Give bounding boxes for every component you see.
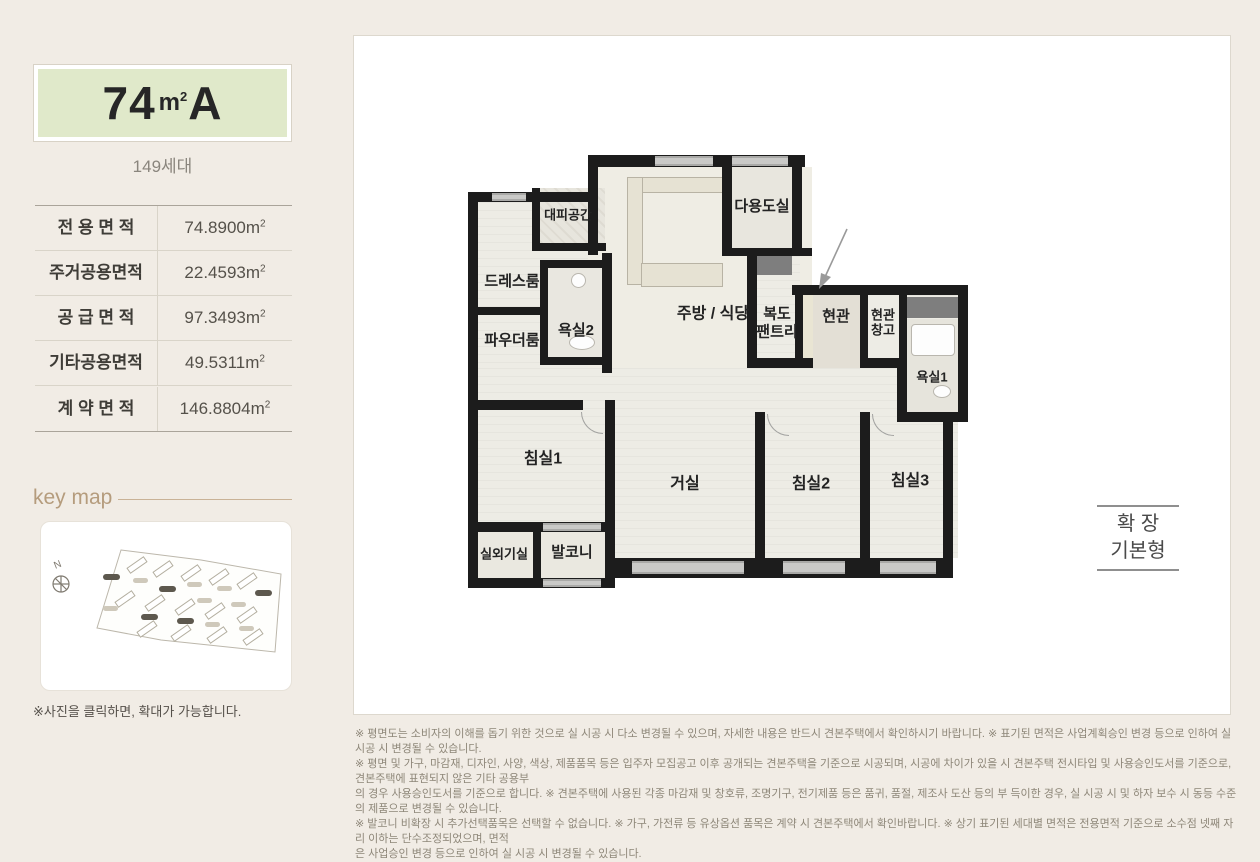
unit-type-title: 74m2A — [38, 69, 287, 137]
room-label-pantry: 복도팬트리 — [756, 305, 797, 340]
window — [655, 156, 713, 166]
table-row: 주거공용면적 22.4593m2 — [35, 251, 292, 296]
wall — [602, 253, 612, 373]
room-label-entry-closet: 현관창고 — [871, 308, 895, 339]
wall — [897, 412, 968, 422]
area-table: 전 용 면 적 74.8900m2 주거공용면적 22.4593m2 공 급 면… — [35, 205, 292, 432]
wall — [899, 295, 907, 365]
wall — [747, 358, 813, 368]
unit-type-letter: A — [188, 76, 222, 130]
wall — [860, 295, 868, 368]
bathtub — [911, 324, 955, 356]
wall — [540, 260, 610, 268]
badge-line1: 확 장 — [1097, 511, 1179, 538]
window — [632, 561, 744, 574]
disclaimer-line: ※ 평면 및 가구, 마감재, 디자인, 사양, 색상, 제품품목 등은 입주자… — [355, 757, 1241, 787]
wall — [468, 400, 583, 410]
room-label-ac-room: 실외기실 — [480, 546, 528, 561]
entrance-arrow-icon — [813, 225, 857, 293]
disclaimer-line: 은 사업승인 변경 등으로 인하여 실 시공 시 변경될 수 있습니다. — [355, 847, 1241, 862]
wall — [532, 188, 540, 250]
table-row: 기타공용면적 49.5311m2 — [35, 341, 292, 386]
room-label-vestibule: 현관 — [822, 308, 850, 326]
unit-type-title-box: 74m2A — [33, 64, 292, 142]
room-label-dressroom: 드레스룸 — [484, 273, 539, 291]
room-label-bedroom1: 침실1 — [524, 451, 562, 470]
keymap-title: key map — [33, 486, 112, 510]
table-row: 계 약 면 적 146.8804m2 — [35, 386, 292, 431]
disclaimer-line: 의 경우 사용승인도서를 기준으로 합니다. ※ 견본주택에 사용된 각종 마감… — [355, 787, 1241, 817]
wall — [792, 155, 802, 256]
page: { "colors": { "accent_green": "#e0e9ca",… — [0, 0, 1260, 825]
window — [543, 523, 601, 531]
unit-size: 74 — [103, 76, 156, 130]
keymap-card[interactable]: N — [40, 521, 292, 691]
wall — [605, 400, 615, 588]
wall — [722, 155, 732, 255]
wall — [532, 243, 606, 251]
toilet — [933, 385, 951, 398]
wall — [540, 260, 548, 365]
room-label-powder: 파우더룸 — [484, 332, 539, 350]
wall — [588, 155, 598, 255]
households-count: 149세대 — [33, 152, 292, 177]
floorplan-image[interactable]: 대피공간 드레스룸 파우더룸 욕실2 주방 / 식당 다용도실 복도팬트리 현관… — [455, 145, 1085, 600]
badge-line2: 기본형 — [1097, 538, 1179, 565]
window — [732, 156, 788, 166]
keymap-caption: ※사진을 클릭하면, 확대가 가능합니다. — [33, 701, 241, 720]
kitchen-island — [641, 263, 723, 287]
wall — [943, 412, 953, 578]
utility-appliance — [752, 256, 792, 275]
entry-shelf — [907, 297, 958, 318]
table-row: 공 급 면 적 97.3493m2 — [35, 296, 292, 341]
room-label-bath2: 욕실2 — [558, 322, 594, 340]
expand-basic-badge: 확 장 기본형 — [1097, 505, 1179, 571]
room-label-utility: 다용도실 — [734, 198, 789, 216]
compass-north-label: N — [52, 559, 63, 572]
wall — [958, 285, 968, 422]
disclaimer-text: ※ 평면도는 소비자의 이해를 돕기 위한 것으로 실 시공 시 다소 변경될 … — [355, 727, 1241, 862]
room-label-bedroom2: 침실2 — [792, 476, 830, 495]
unit-size-unit: m2 — [159, 89, 188, 117]
badge-rule-bottom — [1097, 569, 1179, 571]
disclaimer-line: ※ 평면도는 소비자의 이해를 돕기 위한 것으로 실 시공 시 다소 변경될 … — [355, 727, 1241, 757]
room-label-balcony: 발코니 — [551, 544, 592, 562]
wall — [478, 307, 542, 315]
wall — [897, 358, 907, 422]
room-label-refuge: 대피공간 — [544, 207, 592, 222]
wall — [540, 357, 610, 365]
window — [492, 193, 526, 201]
room-label-bedroom3: 침실3 — [891, 473, 929, 492]
wall — [755, 412, 765, 558]
table-row: 전 용 면 적 74.8900m2 — [35, 206, 292, 251]
keymap-siteplan-image: N — [41, 522, 291, 690]
sink — [571, 273, 586, 288]
window — [880, 561, 936, 574]
entry-door-panel — [803, 295, 813, 358]
floor-vestibule — [813, 295, 860, 368]
disclaimer-line: ※ 발코니 비확장 시 추가선택품목은 선택할 수 없습니다. ※ 가구, 가전… — [355, 817, 1241, 847]
room-label-living: 거실 — [670, 476, 699, 495]
window — [783, 561, 845, 574]
room-label-kitchen: 주방 / 식당 — [677, 306, 749, 325]
wall — [860, 412, 870, 558]
room-label-bath1: 욕실1 — [916, 369, 947, 384]
keymap-title-rule — [118, 499, 292, 500]
window — [543, 579, 601, 587]
